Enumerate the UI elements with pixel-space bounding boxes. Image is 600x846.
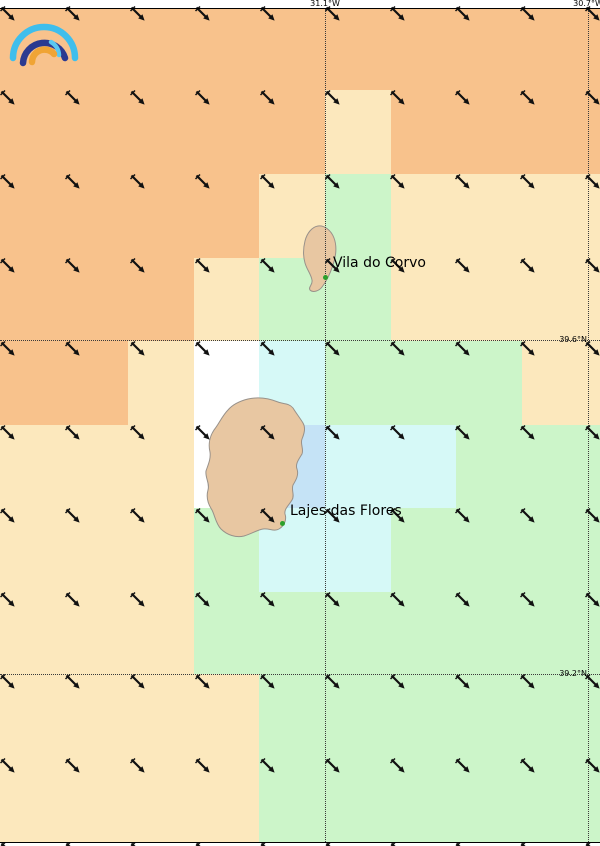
city-dot <box>323 275 328 280</box>
longitude-label: 31.1°W <box>310 0 340 8</box>
latitude-label: 39.6°N <box>559 336 587 344</box>
labels-layer: 31.1°W30.7°W39.6°N39.2°NVila do CorvoLaj… <box>0 0 600 846</box>
city-label: Vila do Corvo <box>333 255 426 271</box>
city-label: Lajes das Flores <box>290 503 402 519</box>
weather-map: 31.1°W30.7°W39.6°N39.2°NVila do CorvoLaj… <box>0 0 600 846</box>
city-dot <box>280 521 285 526</box>
latitude-label: 39.2°N <box>559 670 587 678</box>
longitude-label: 30.7°W <box>573 0 600 8</box>
